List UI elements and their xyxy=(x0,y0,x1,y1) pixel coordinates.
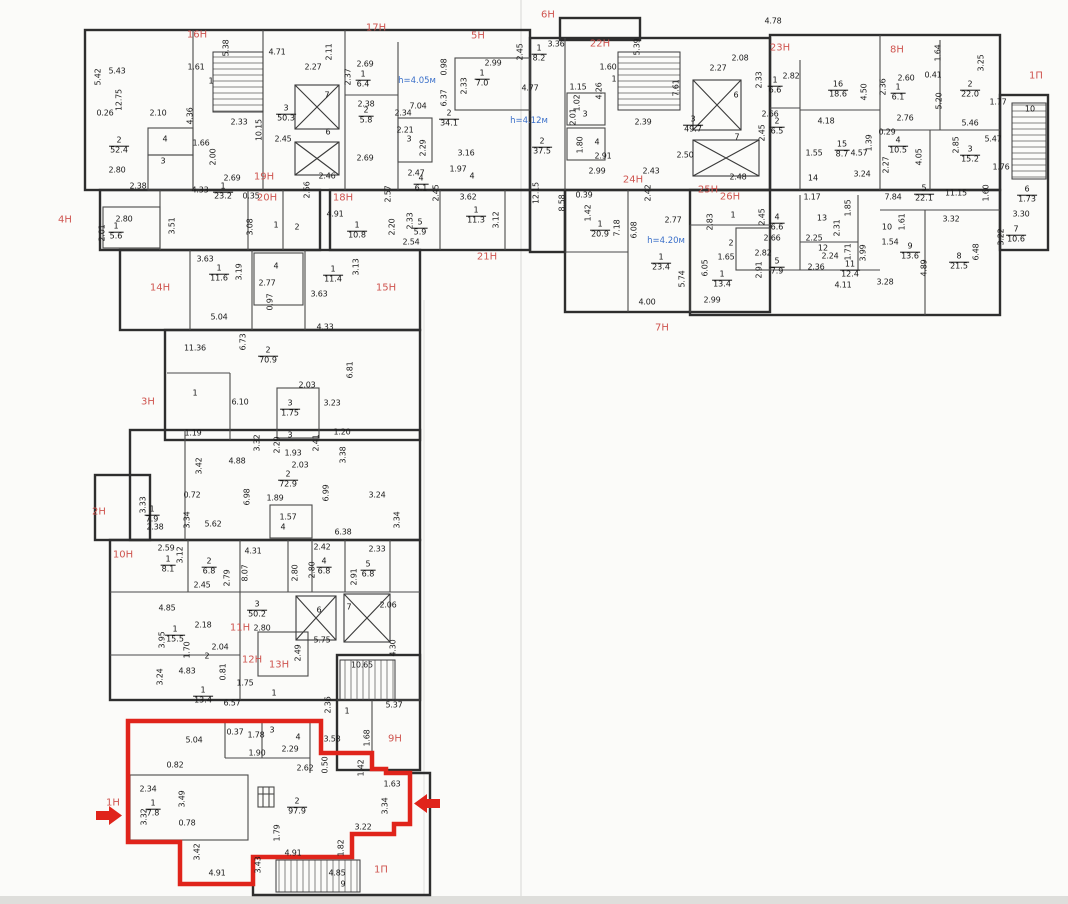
room-area-label: 31.75 xyxy=(280,400,300,419)
dimension-label: 2.27 xyxy=(709,64,726,73)
dimension-label: 3.30 xyxy=(1012,210,1029,219)
unit-label: 2Н xyxy=(92,507,106,518)
dimension-label: 2.82 xyxy=(754,249,771,258)
dimension-label: 5.38 xyxy=(222,39,231,56)
unit-label: 16Н xyxy=(187,30,207,41)
dimension-label: 6.81 xyxy=(346,361,355,378)
room-area-label: 913.6 xyxy=(900,243,920,262)
dimension-label: 2.39 xyxy=(634,118,651,127)
dimension-label: 2.34 xyxy=(394,109,411,118)
dimension-label: 4.05 xyxy=(915,148,924,165)
dimension-label: 2.56 xyxy=(303,181,312,198)
room-area-label: 123.2 xyxy=(213,183,233,202)
unit-label: 21Н xyxy=(477,252,497,263)
dimension-label: 2.21 xyxy=(396,126,413,135)
dimension-label: 7.04 xyxy=(409,102,426,111)
unit-label: 17Н xyxy=(366,23,386,34)
dimension-label: 3.12 xyxy=(492,211,501,228)
dimension-label: 1.78 xyxy=(247,731,264,740)
dimension-label: 0.72 xyxy=(183,491,200,500)
dimension-label: 2.10 xyxy=(149,109,166,118)
dimension-label: 3.23 xyxy=(323,399,340,408)
dimension-label: 0.97 xyxy=(266,293,275,310)
dimension-label: 7.18 xyxy=(613,219,622,236)
unit-label: 22Н xyxy=(590,39,610,50)
room-area-label: 158.7 xyxy=(835,141,850,160)
dimension-label: 2.29 xyxy=(273,436,282,453)
dimension-label: 3.34 xyxy=(183,511,192,528)
room-number-label: 2 xyxy=(728,239,733,248)
dimension-label: 1.19 xyxy=(184,429,201,438)
dimension-label: 2.06 xyxy=(379,601,396,610)
dimension-label: 2.00 xyxy=(209,148,218,165)
dimension-label: 0.41 xyxy=(924,71,941,80)
dimension-label: 1.42 xyxy=(584,204,593,221)
room-area-label: 1112.4 xyxy=(840,261,860,280)
dimension-label: 6.48 xyxy=(972,243,981,260)
dimension-label: 2.36 xyxy=(324,696,333,713)
dimension-label: 2.25 xyxy=(805,234,822,243)
room-area-label: 111.6 xyxy=(209,265,229,284)
room-area-label: 18.2 xyxy=(532,45,547,64)
room-area-label: 17.8 xyxy=(146,800,161,819)
dimension-label: 2.45 xyxy=(432,184,441,201)
room-area-label: 115.5 xyxy=(165,626,185,645)
dimension-label: 5.75 xyxy=(313,636,330,645)
room-number-label: 2 xyxy=(294,223,299,232)
unit-label: 13Н xyxy=(269,660,289,671)
room-area-label: 57.9 xyxy=(770,258,785,277)
dimension-label: 2.38 xyxy=(129,182,146,191)
dimension-label: 4.89 xyxy=(920,259,929,276)
dimension-label: 2.36 xyxy=(807,263,824,272)
dimension-label: 3.28 xyxy=(876,278,893,287)
ceiling-height-label: h=4.20м xyxy=(647,236,685,246)
labels-layer: 5.435.420.2612.752.104.361.615.382.802.3… xyxy=(0,0,1068,904)
dimension-label: 4.31 xyxy=(244,547,261,556)
dimension-label: 2.46 xyxy=(318,172,335,181)
room-area-label: 522.1 xyxy=(914,185,934,204)
dimension-label: 3.32 xyxy=(253,434,262,451)
dimension-label: 1.97 xyxy=(449,165,466,174)
room-number-label: 6 xyxy=(325,128,330,137)
dimension-label: 6.08 xyxy=(630,221,639,238)
dimension-label: 1.57 xyxy=(279,513,296,522)
dimension-label: 2.18 xyxy=(194,621,211,630)
dimension-label: 3.22 xyxy=(354,823,371,832)
unit-label: 20Н xyxy=(257,193,277,204)
room-area-label: 16.6 xyxy=(768,77,783,96)
room-area-label: 123.4 xyxy=(651,254,671,273)
dimension-label: 4.91 xyxy=(284,849,301,858)
dimension-label: 3.19 xyxy=(235,263,244,280)
dimension-label: 2.33 xyxy=(230,118,247,127)
dimension-label: 3.25 xyxy=(977,54,986,71)
dimension-label: 1.85 xyxy=(844,199,853,216)
dimension-label: 3.08 xyxy=(246,218,255,235)
room-area-label: 17.0 xyxy=(475,70,490,89)
dimension-label: 6.05 xyxy=(701,259,710,276)
room-area-label: 15.6 xyxy=(109,223,124,242)
dimension-label: 6.99 xyxy=(322,484,331,501)
dimension-label: 3.32 xyxy=(942,215,959,224)
dimension-label: 2.08 xyxy=(731,54,748,63)
room-area-label: 17.9 xyxy=(145,506,160,525)
dimension-label: 11.36 xyxy=(184,344,206,353)
dimension-label: 2.69 xyxy=(356,154,373,163)
dimension-label: 1.64 xyxy=(934,44,943,61)
dimension-label: 4.83 xyxy=(178,667,195,676)
dimension-label: 4.26 xyxy=(595,82,604,99)
dimension-label: 3.34 xyxy=(381,797,390,814)
dimension-label: 4.33 xyxy=(316,323,333,332)
dimension-label: 1.65 xyxy=(717,253,734,262)
dimension-label: 4.71 xyxy=(268,48,285,57)
dimension-label: 2.24 xyxy=(821,252,838,261)
dimension-label: 1.75 xyxy=(236,679,253,688)
dimension-label: 12.15 xyxy=(532,182,541,204)
dimension-label: 4.00 xyxy=(638,298,655,307)
room-area-label: 234.1 xyxy=(439,110,459,129)
dimension-label: 4.91 xyxy=(208,869,225,878)
dimension-label: 1.90 xyxy=(248,749,265,758)
unit-label: 23Н xyxy=(770,43,790,54)
room-area-label: 16.1 xyxy=(891,84,906,103)
dimension-label: 11.15 xyxy=(945,189,967,198)
room-number-label: 6 xyxy=(316,606,321,615)
dimension-label: 2.80 xyxy=(108,166,125,175)
dimension-label: 2.76 xyxy=(896,114,913,123)
dimension-label: 0.29 xyxy=(878,128,895,137)
dimension-label: 2.03 xyxy=(291,461,308,470)
room-number-label: 7 xyxy=(346,603,351,612)
room-number-label: 4 xyxy=(469,172,474,181)
dimension-label: 0.81 xyxy=(219,663,228,680)
unit-label: 26Н xyxy=(720,192,740,203)
room-area-label: 113.4 xyxy=(193,687,213,706)
dimension-label: 1.63 xyxy=(383,780,400,789)
dimension-label: 3.13 xyxy=(352,258,361,275)
dimension-label: 1.80 xyxy=(576,136,585,153)
dimension-label: 3.16 xyxy=(457,149,474,158)
room-number-label: 3 xyxy=(160,157,165,166)
unit-label: 1Н xyxy=(106,798,120,809)
dimension-label: 1.60 xyxy=(599,63,616,72)
dimension-label: 2.60 xyxy=(897,74,914,83)
dimension-label: 2.01 xyxy=(569,108,578,125)
room-number-label: 3 xyxy=(287,431,292,440)
dimension-label: 4.91 xyxy=(326,210,343,219)
dimension-label: 12.75 xyxy=(115,89,124,111)
room-number-label: 1 xyxy=(271,689,276,698)
room-area-label: 272.9 xyxy=(278,471,298,490)
dimension-label: 5.04 xyxy=(185,736,202,745)
unit-label: 3Н xyxy=(141,397,155,408)
dimension-label: 1.60 xyxy=(982,184,991,201)
dimension-label: 6.37 xyxy=(440,89,449,106)
room-number-label: 7 xyxy=(324,91,329,100)
dimension-label: 3.22 xyxy=(997,228,1006,245)
room-number-label: 14 xyxy=(808,174,818,183)
unit-label: 24Н xyxy=(623,175,643,186)
room-area-label: 55.9 xyxy=(413,219,428,238)
dimension-label: 2.27 xyxy=(304,63,321,72)
dimension-label: 2.11 xyxy=(325,43,334,60)
dimension-label: 2.31 xyxy=(833,219,842,236)
dimension-label: 0.82 xyxy=(166,761,183,770)
floor-plan: 5.435.420.2612.752.104.361.615.382.802.3… xyxy=(0,0,1068,904)
dimension-label: 3.42 xyxy=(195,457,204,474)
dimension-label: 4.33 xyxy=(191,186,208,195)
dimension-label: 2.57 xyxy=(384,185,393,202)
dimension-label: 6.73 xyxy=(239,333,248,350)
dimension-label: 2.29 xyxy=(419,139,428,156)
unit-label: 6Н xyxy=(541,10,555,21)
dimension-label: 2.50 xyxy=(676,151,693,160)
dimension-label: 3.49 xyxy=(178,790,187,807)
dimension-label: 2.49 xyxy=(294,644,303,661)
room-number-label: 1 xyxy=(208,77,213,86)
dimension-label: 1.76 xyxy=(992,163,1009,172)
dimension-label: 2.42 xyxy=(313,543,330,552)
room-number-label: 3 xyxy=(269,726,274,735)
dimension-label: 1.93 xyxy=(284,449,301,458)
dimension-label: 2.48 xyxy=(729,173,746,182)
room-area-label: 56.8 xyxy=(361,561,376,580)
dimension-label: 1.89 xyxy=(266,494,283,503)
unit-label: 5Н xyxy=(471,31,485,42)
dimension-label: 2.34 xyxy=(139,785,156,794)
room-area-label: 111.3 xyxy=(466,207,486,226)
dimension-label: 2.91 xyxy=(755,261,764,278)
dimension-label: 4.18 xyxy=(817,117,834,126)
dimension-label: 5.47 xyxy=(984,135,1001,144)
unit-label: 25Н xyxy=(698,185,718,196)
dimension-label: 8.58 xyxy=(558,194,567,211)
room-number-label: 7 xyxy=(734,133,739,142)
dimension-label: 6.38 xyxy=(334,528,351,537)
dimension-label: 5.20 xyxy=(935,92,944,109)
dimension-label: 1.82 xyxy=(337,839,346,856)
dimension-label: 3.38 xyxy=(339,446,348,463)
dimension-label: 4.36 xyxy=(186,107,195,124)
unit-label: 1П xyxy=(1029,71,1043,82)
room-number-label: 1 xyxy=(611,75,616,84)
dimension-label: 5.42 xyxy=(94,68,103,85)
dimension-label: 0.26 xyxy=(96,109,113,118)
dimension-label: 3.43 xyxy=(254,856,263,873)
room-area-label: 350.2 xyxy=(247,601,267,620)
room-area-label: 111.4 xyxy=(323,266,343,285)
dimension-label: 2.45 xyxy=(516,43,525,60)
dimension-label: 2.82 xyxy=(782,72,799,81)
room-area-label: 110.8 xyxy=(347,222,367,241)
dimension-label: 6.10 xyxy=(231,398,248,407)
dimension-label: 2.69 xyxy=(356,60,373,69)
unit-label: 12Н xyxy=(242,655,262,666)
dimension-label: 1.71 xyxy=(844,243,853,260)
dimension-label: 0.39 xyxy=(575,191,592,200)
dimension-label: 1.61 xyxy=(898,213,907,230)
dimension-label: 5.74 xyxy=(678,270,687,287)
dimension-label: 2.54 xyxy=(402,238,419,247)
dimension-label: 3.24 xyxy=(368,491,385,500)
room-number-label: 3 xyxy=(582,110,587,119)
dimension-label: 2.77 xyxy=(258,279,275,288)
dimension-label: 3.51 xyxy=(168,217,177,234)
dimension-label: 2.37 xyxy=(344,68,353,85)
dimension-label: 2.45 xyxy=(274,135,291,144)
dimension-label: 6.98 xyxy=(243,488,252,505)
dimension-label: 2.83 xyxy=(706,213,715,230)
dimension-label: 10.15 xyxy=(255,119,264,141)
dimension-label: 2.41 xyxy=(312,434,321,451)
room-number-label: 12 xyxy=(818,244,828,253)
dimension-label: 3.42 xyxy=(193,843,202,860)
unit-label: 9Н xyxy=(388,734,402,745)
dimension-label: 3.58 xyxy=(323,735,340,744)
room-area-label: 26.8 xyxy=(202,558,217,577)
room-area-label: 270.9 xyxy=(258,347,278,366)
dimension-label: 0.78 xyxy=(178,819,195,828)
room-area-label: 350.3 xyxy=(276,105,296,124)
room-area-label: 18.1 xyxy=(161,556,176,575)
dimension-label: 5.62 xyxy=(204,520,221,529)
dimension-label: 1.55 xyxy=(805,149,822,158)
dimension-label: 3.63 xyxy=(196,255,213,264)
dimension-label: 2.99 xyxy=(484,59,501,68)
dimension-label: 5.46 xyxy=(961,119,978,128)
room-area-label: 315.2 xyxy=(960,146,980,165)
dimension-label: 3.63 xyxy=(310,290,327,299)
room-number-label: 1 xyxy=(730,211,735,220)
room-number-label: 4 xyxy=(162,135,167,144)
dimension-label: 1.61 xyxy=(187,63,204,72)
dimension-label: 4.78 xyxy=(764,17,781,26)
dimension-label: 0.98 xyxy=(440,58,449,75)
dimension-label: 1.68 xyxy=(363,729,372,746)
room-number-label: 1 xyxy=(273,221,278,230)
room-area-label: 46.6 xyxy=(770,214,785,233)
dimension-label: 3.12 xyxy=(176,546,185,563)
dimension-label: 2.42 xyxy=(644,184,653,201)
dimension-label: 2.29 xyxy=(281,745,298,754)
dimension-label: 5.04 xyxy=(210,313,227,322)
dimension-label: 1.79 xyxy=(273,824,282,841)
dimension-label: 2.62 xyxy=(296,764,313,773)
dimension-label: 2.20 xyxy=(388,218,397,235)
dimension-label: 2.59 xyxy=(157,544,174,553)
dimension-label: 2.66 xyxy=(763,234,780,243)
room-number-label: 9 xyxy=(340,880,345,889)
dimension-label: 2.77 xyxy=(664,216,681,225)
dimension-label: 10.65 xyxy=(351,661,373,670)
dimension-label: 7.84 xyxy=(884,193,901,202)
dimension-label: 0.37 xyxy=(226,728,243,737)
room-area-label: 46.8 xyxy=(317,558,332,577)
dimension-label: 7.61 xyxy=(672,79,681,96)
dimension-label: 2.45 xyxy=(193,581,210,590)
dimension-label: 2.79 xyxy=(223,569,232,586)
room-area-label: 297.9 xyxy=(287,798,307,817)
unit-label: 15Н xyxy=(376,283,396,294)
dimension-label: 2.33 xyxy=(368,545,385,554)
dimension-label: 1.20 xyxy=(333,428,350,437)
dimension-label: 4.30 xyxy=(389,639,398,656)
dimension-label: 2.45 xyxy=(758,208,767,225)
room-number-label: 10 xyxy=(882,223,892,232)
dimension-label: 2.27 xyxy=(882,156,891,173)
dimension-label: 5.37 xyxy=(385,701,402,710)
room-number-label: 4 xyxy=(273,262,278,271)
dimension-label: 4.85 xyxy=(328,869,345,878)
unit-label: 14Н xyxy=(150,283,170,294)
dimension-label: 2.91 xyxy=(594,152,611,161)
dimension-label: 4.50 xyxy=(860,83,869,100)
dimension-label: 2.33 xyxy=(460,77,469,94)
dimension-label: 6.57 xyxy=(223,699,240,708)
unit-label: 11Н xyxy=(230,623,250,634)
room-area-label: 821.5 xyxy=(949,253,969,272)
room-area-label: 222.0 xyxy=(960,81,980,100)
room-area-label: 25.8 xyxy=(359,107,374,126)
dimension-label: 4.57 xyxy=(850,149,867,158)
room-number-label: 4 xyxy=(280,523,285,532)
dimension-label: 5.39 xyxy=(633,38,642,55)
room-area-label: 16.4 xyxy=(356,71,371,90)
unit-label: 8Н xyxy=(890,45,904,56)
dimension-label: 1.66 xyxy=(192,139,209,148)
room-number-label: 4 xyxy=(295,733,300,742)
room-number-label: 2 xyxy=(204,652,209,661)
dimension-label: 2.99 xyxy=(588,167,605,176)
dimension-label: 5.43 xyxy=(108,67,125,76)
room-area-label: 252.4 xyxy=(109,137,129,156)
dimension-label: 2.33 xyxy=(755,71,764,88)
dimension-label: 4.88 xyxy=(228,457,245,466)
dimension-label: 2.43 xyxy=(642,167,659,176)
room-number-label: 1 xyxy=(192,389,197,398)
dimension-label: 1.42 xyxy=(357,759,366,776)
room-area-label: 710.6 xyxy=(1006,226,1026,245)
dimension-label: 1.15 xyxy=(569,83,586,92)
dimension-label: 8.07 xyxy=(241,564,250,581)
room-area-label: 61.73 xyxy=(1017,186,1037,205)
dimension-label: 2.04 xyxy=(211,643,228,652)
room-area-label: 237.5 xyxy=(532,138,552,157)
dimension-label: 2.36 xyxy=(879,78,888,95)
room-area-label: 349.7 xyxy=(683,116,703,135)
room-area-label: 113.4 xyxy=(712,271,732,290)
dimension-label: 4.85 xyxy=(158,604,175,613)
unit-label: 7Н xyxy=(655,323,669,334)
dimension-label: 1.17 xyxy=(803,193,820,202)
unit-label: 4Н xyxy=(58,215,72,226)
dimension-label: 3.99 xyxy=(859,244,868,261)
dimension-label: 2.80 xyxy=(308,561,317,578)
dimension-label: 2.80 xyxy=(291,564,300,581)
dimension-label: 3.34 xyxy=(393,511,402,528)
ceiling-height-label: h=4.12м xyxy=(510,116,548,126)
dimension-label: 2.45 xyxy=(758,124,767,141)
dimension-label: 4.77 xyxy=(521,84,538,93)
room-number-label: 6 xyxy=(733,91,738,100)
dimension-label: 3.36 xyxy=(547,40,564,49)
unit-label: 10Н xyxy=(113,550,133,561)
dimension-label: 2.80 xyxy=(253,624,270,633)
room-area-label: 410.5 xyxy=(888,137,908,156)
dimension-label: 2.03 xyxy=(298,381,315,390)
